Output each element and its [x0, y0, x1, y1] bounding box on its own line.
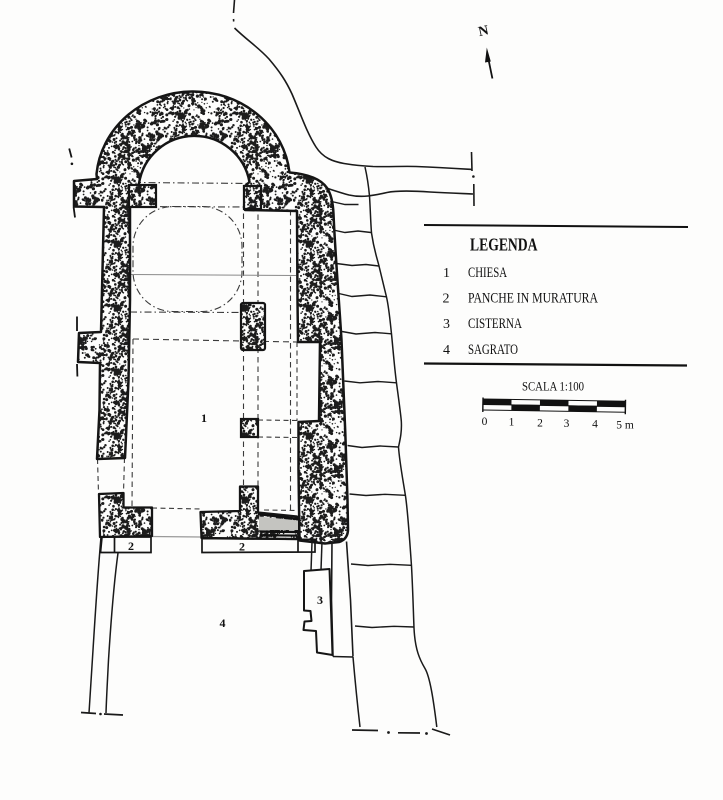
svg-text:CISTERNA: CISTERNA: [468, 316, 522, 332]
svg-text:3: 3: [317, 593, 323, 607]
svg-text:1: 1: [509, 417, 515, 429]
svg-text:2: 2: [443, 292, 450, 307]
svg-text:2: 2: [239, 540, 245, 554]
svg-text:4: 4: [443, 343, 450, 358]
svg-text:SAGRATO: SAGRATO: [468, 342, 518, 358]
svg-text:CHIESA: CHIESA: [468, 265, 507, 281]
svg-text:3: 3: [564, 418, 570, 430]
svg-text:N: N: [477, 23, 490, 40]
svg-text:1: 1: [201, 411, 207, 425]
svg-text:SCALA 1:100: SCALA 1:100: [522, 379, 584, 394]
svg-text:0: 0: [482, 416, 488, 428]
svg-text:1: 1: [443, 266, 450, 281]
svg-text:3: 3: [443, 317, 450, 332]
svg-text:2: 2: [537, 418, 543, 430]
svg-text:4: 4: [220, 616, 226, 630]
svg-text:PANCHE IN MURATURA: PANCHE IN MURATURA: [468, 291, 598, 307]
svg-text:2: 2: [128, 539, 134, 553]
svg-text:LEGENDA: LEGENDA: [470, 235, 538, 255]
svg-text:4: 4: [592, 419, 598, 431]
svg-text:5 m: 5 m: [616, 420, 634, 432]
